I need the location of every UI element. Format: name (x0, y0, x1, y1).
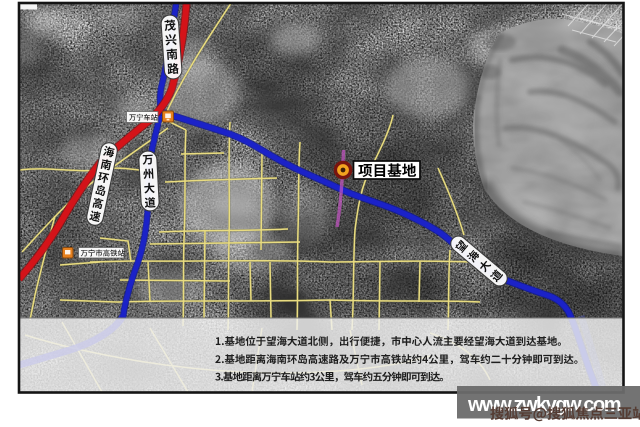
svg-text:www.zwkygw.com: www.zwkygw.com (467, 394, 621, 416)
